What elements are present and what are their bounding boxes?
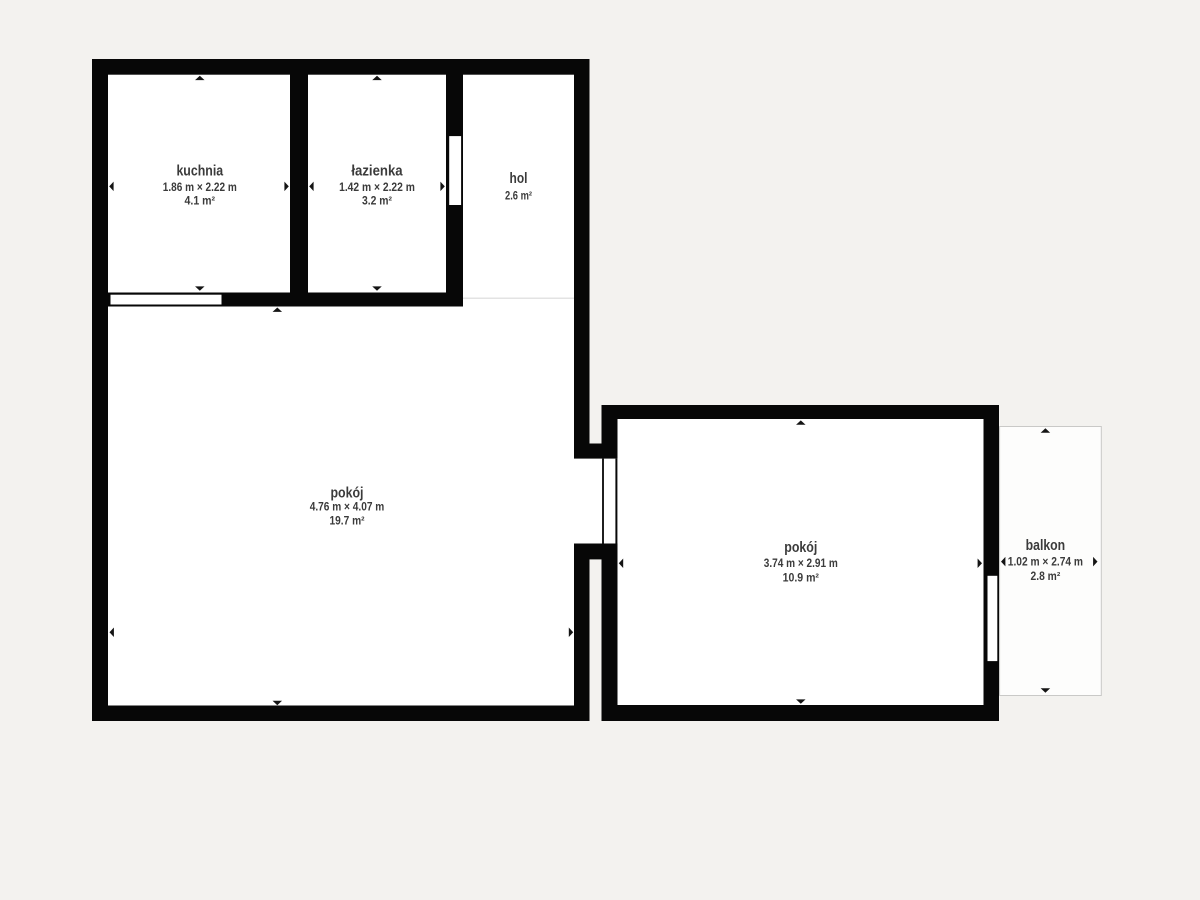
svg-text:hol: hol [510, 170, 528, 187]
svg-text:1.42 m × 2.22 m: 1.42 m × 2.22 m [339, 182, 415, 194]
svg-text:balkon: balkon [1026, 537, 1066, 554]
svg-text:1.86 m × 2.22 m: 1.86 m × 2.22 m [163, 182, 237, 194]
svg-text:kuchnia: kuchnia [176, 162, 223, 179]
svg-text:10.9 m²: 10.9 m² [783, 573, 819, 585]
svg-text:pokój: pokój [331, 484, 364, 501]
svg-text:2.8 m²: 2.8 m² [1031, 571, 1061, 583]
svg-text:4.76 m × 4.07 m: 4.76 m × 4.07 m [310, 501, 385, 513]
svg-text:pokój: pokój [784, 539, 817, 556]
svg-text:2.6 m²: 2.6 m² [505, 190, 532, 202]
svg-text:3.74 m × 2.91 m: 3.74 m × 2.91 m [764, 558, 838, 570]
svg-text:19.7 m²: 19.7 m² [330, 515, 365, 527]
svg-text:3.2 m²: 3.2 m² [362, 196, 392, 208]
svg-text:4.1 m²: 4.1 m² [185, 196, 216, 208]
svg-text:łazienka: łazienka [351, 162, 403, 179]
svg-text:1.02 m × 2.74 m: 1.02 m × 2.74 m [1008, 556, 1083, 568]
